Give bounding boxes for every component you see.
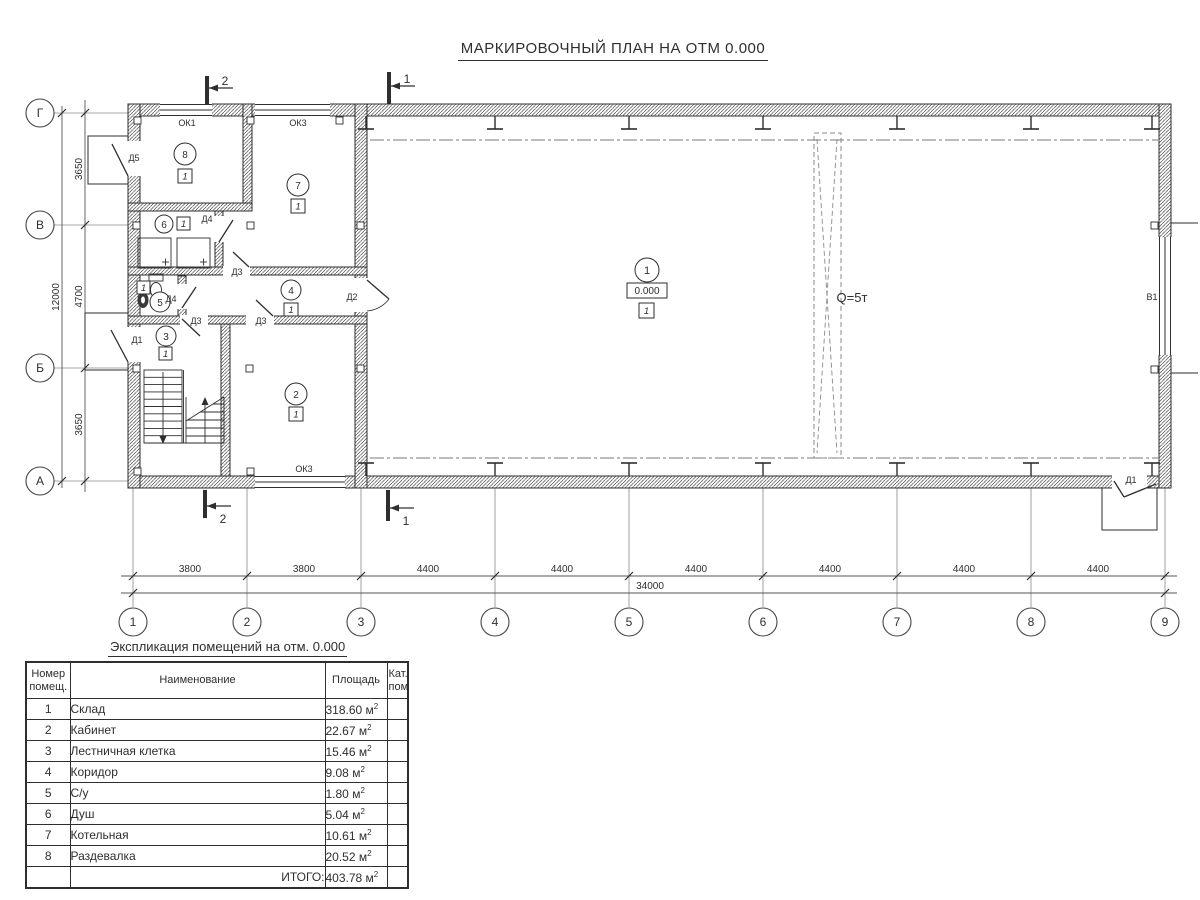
pilaster [133, 222, 140, 229]
room-badge-8: 8 1 [174, 143, 196, 183]
pilaster [1151, 366, 1158, 373]
dimension-label: 3650 [74, 413, 85, 436]
svg-text:2: 2 [293, 390, 299, 401]
table-cell: Раздевалка [70, 846, 325, 867]
svg-text:1: 1 [163, 349, 168, 360]
svg-text:1: 1 [644, 306, 649, 317]
axis-number: 8 [1028, 615, 1035, 629]
table-cell: 4 [26, 762, 70, 783]
table-cell: Душ [70, 804, 325, 825]
table-row: 6Душ5.04 м2 [26, 804, 408, 825]
pilaster [246, 365, 253, 372]
door-label-d4-shower: Д4 [201, 214, 212, 224]
opening-labels: ОК1 ОК3 ОК3 В1 Д5 Д1 Д4 Д4 Д3 Д3 Д3 Д2 Д… [128, 118, 1157, 485]
dimension-label: 4400 [551, 564, 574, 575]
door-label-d3-boiler: Д3 [231, 267, 242, 277]
table-total-row: ИТОГО:403.78 м2 [26, 867, 408, 889]
svg-text:1: 1 [403, 514, 410, 528]
svg-text:1: 1 [181, 219, 186, 230]
dimension-label: 3800 [179, 564, 202, 575]
svg-text:8: 8 [182, 150, 188, 161]
room-badge-3: 3 1 [156, 326, 176, 360]
svg-text:1: 1 [644, 265, 650, 277]
table-row: 4Коридор9.08 м2 [26, 762, 408, 783]
svg-text:1: 1 [404, 72, 411, 86]
stair-arrow-up [202, 397, 209, 405]
pilaster [133, 365, 140, 372]
axis-number: 6 [760, 615, 767, 629]
table-cell: 20.52 м2 [325, 846, 387, 867]
dimension-label: 3650 [74, 157, 85, 180]
table-cell: Лестничная клетка [70, 741, 325, 762]
dimension-total-label: 12000 [51, 283, 62, 311]
door-label-d1-right: Д1 [1125, 475, 1136, 485]
table-row: 2Кабинет22.67 м2 [26, 720, 408, 741]
room-badge-7: 7 1 [287, 174, 309, 213]
table-cell: 15.46 м2 [325, 741, 387, 762]
axis-letter: А [36, 474, 44, 488]
table-cell [387, 699, 408, 720]
axis-number: 4 [492, 615, 499, 629]
svg-text:5: 5 [157, 298, 163, 309]
svg-text:2: 2 [222, 74, 229, 88]
svg-text:7: 7 [295, 181, 301, 192]
pilaster [134, 117, 141, 124]
table-row: 1Склад318.60 м2 [26, 699, 408, 720]
dimension-label: 4400 [953, 564, 976, 575]
svg-text:3: 3 [163, 332, 169, 343]
table-cell [387, 762, 408, 783]
table-header-cell: Площадь [325, 662, 387, 699]
table-cell: 6 [26, 804, 70, 825]
table-row: 3Лестничная клетка15.46 м2 [26, 741, 408, 762]
elevation-mark: 0.000 [634, 286, 659, 297]
pilaster [247, 222, 254, 229]
axis-number: 7 [894, 615, 901, 629]
table-header-row: Номер помещ.НаименованиеПлощадьКат. пом. [26, 662, 408, 699]
drawing-title: МАРКИРОВОЧНЫЙ ПЛАН НА ОТМ 0.000 [0, 40, 1200, 61]
table-cell [387, 741, 408, 762]
dimension-total-label: 34000 [636, 581, 664, 592]
dimension-label: 4400 [417, 564, 440, 575]
table-cell: 8 [26, 846, 70, 867]
table-cell [387, 783, 408, 804]
pilaster [247, 117, 254, 124]
door-label-d3-office: Д3 [255, 316, 266, 326]
door-label-d1-left: Д1 [131, 335, 142, 345]
table-cell [387, 846, 408, 867]
table-cell: 1 [26, 699, 70, 720]
axis-number: 1 [130, 615, 137, 629]
svg-text:6: 6 [161, 220, 167, 231]
table-cell: 22.67 м2 [325, 720, 387, 741]
table-cell: 5 [26, 783, 70, 804]
table-row: 8Раздевалка20.52 м2 [26, 846, 408, 867]
window-label-ok3-bottom: ОК3 [295, 464, 312, 474]
svg-text:1: 1 [182, 172, 187, 183]
door-label-d4-wc: Д4 [165, 294, 176, 304]
table-cell: 5.04 м2 [325, 804, 387, 825]
door-label-d2: Д2 [346, 292, 357, 302]
table-header-cell: Наименование [70, 662, 325, 699]
pilaster [357, 365, 364, 372]
dimension-label: 4400 [819, 564, 842, 575]
section-marker-1-top: 1 [387, 72, 415, 104]
dimension-label: 4400 [685, 564, 708, 575]
window-label-ok1: ОК1 [178, 118, 195, 128]
drawing-sheet: МАРКИРОВОЧНЫЙ ПЛАН НА ОТМ 0.000 38003800… [0, 0, 1200, 900]
table-cell [387, 804, 408, 825]
table-cell: 2 [26, 720, 70, 741]
table-cell: С/у [70, 783, 325, 804]
room-badge-1: 1 0.000 1 [627, 258, 667, 318]
table-cell: 403.78 м2 [325, 867, 387, 889]
door-label-d5: Д5 [128, 153, 139, 163]
axis-letter: Б [36, 361, 44, 375]
svg-text:2: 2 [220, 512, 227, 526]
axis-number: 5 [626, 615, 633, 629]
axis-letter: В [36, 218, 44, 232]
dimension-label: 4400 [1087, 564, 1110, 575]
table-row: 7Котельная10.61 м2 [26, 825, 408, 846]
table-cell: 7 [26, 825, 70, 846]
table-cell: Склад [70, 699, 325, 720]
window-label-ok3-top: ОК3 [289, 118, 306, 128]
pilaster [134, 468, 141, 475]
axis-number: 3 [358, 615, 365, 629]
section-marker-2-top: 2 [205, 74, 233, 104]
table-cell: Кабинет [70, 720, 325, 741]
axis-number: 2 [244, 615, 251, 629]
svg-text:1: 1 [141, 283, 146, 294]
table-cell [26, 867, 70, 889]
room-badge-2: 2 1 [285, 383, 307, 421]
shower-stalls [138, 238, 210, 268]
table-cell [387, 720, 408, 741]
room-explication-table: Номер помещ.НаименованиеПлощадьКат. пом.… [25, 661, 409, 889]
svg-text:1: 1 [293, 410, 298, 421]
table-cell [387, 867, 408, 889]
table-header-cell: Номер помещ. [26, 662, 70, 699]
table-cell: Коридор [70, 762, 325, 783]
table-header-cell: Кат. пом. [387, 662, 408, 699]
table-cell: 10.61 м2 [325, 825, 387, 846]
door-label-d3-stairs: Д3 [190, 316, 201, 326]
room-badge-6: 6 1 [155, 215, 190, 233]
table-cell: 318.60 м2 [325, 699, 387, 720]
table-cell [387, 825, 408, 846]
floor-plan: 3800380044004400440044004400440034000365… [0, 0, 1200, 640]
axis-letter: Г [37, 106, 44, 120]
table-row: 5С/у1.80 м2 [26, 783, 408, 804]
svg-text:1: 1 [295, 202, 300, 213]
svg-text:1: 1 [288, 305, 293, 316]
gate-label-v1: В1 [1146, 292, 1157, 302]
pilaster [336, 117, 343, 124]
svg-text:4: 4 [288, 286, 294, 297]
dimension-label: 3800 [293, 564, 316, 575]
table-cell: 1.80 м2 [325, 783, 387, 804]
pilaster [1151, 222, 1158, 229]
crane-capacity-label: Q=5т [837, 290, 868, 305]
table-cell: 3 [26, 741, 70, 762]
table-title: Экспликация помещений на отм. 0.000 [108, 639, 347, 657]
table-cell: Котельная [70, 825, 325, 846]
crane-bridge: Q=5т [370, 133, 1158, 458]
pilaster [247, 468, 254, 475]
pilaster [357, 222, 364, 229]
dimension-label: 4700 [74, 285, 85, 308]
dimension-grid: 3800380044004400440044004400440034000365… [26, 99, 1179, 636]
axis-number: 9 [1162, 615, 1169, 629]
section-marker-2-bottom: 2 [203, 490, 231, 526]
table-cell: ИТОГО: [70, 867, 325, 889]
room-badge-4: 4 1 [281, 280, 301, 316]
section-marker-1-bottom: 1 [386, 490, 414, 528]
staircase [144, 370, 224, 444]
columns [358, 116, 1160, 476]
table-cell: 9.08 м2 [325, 762, 387, 783]
